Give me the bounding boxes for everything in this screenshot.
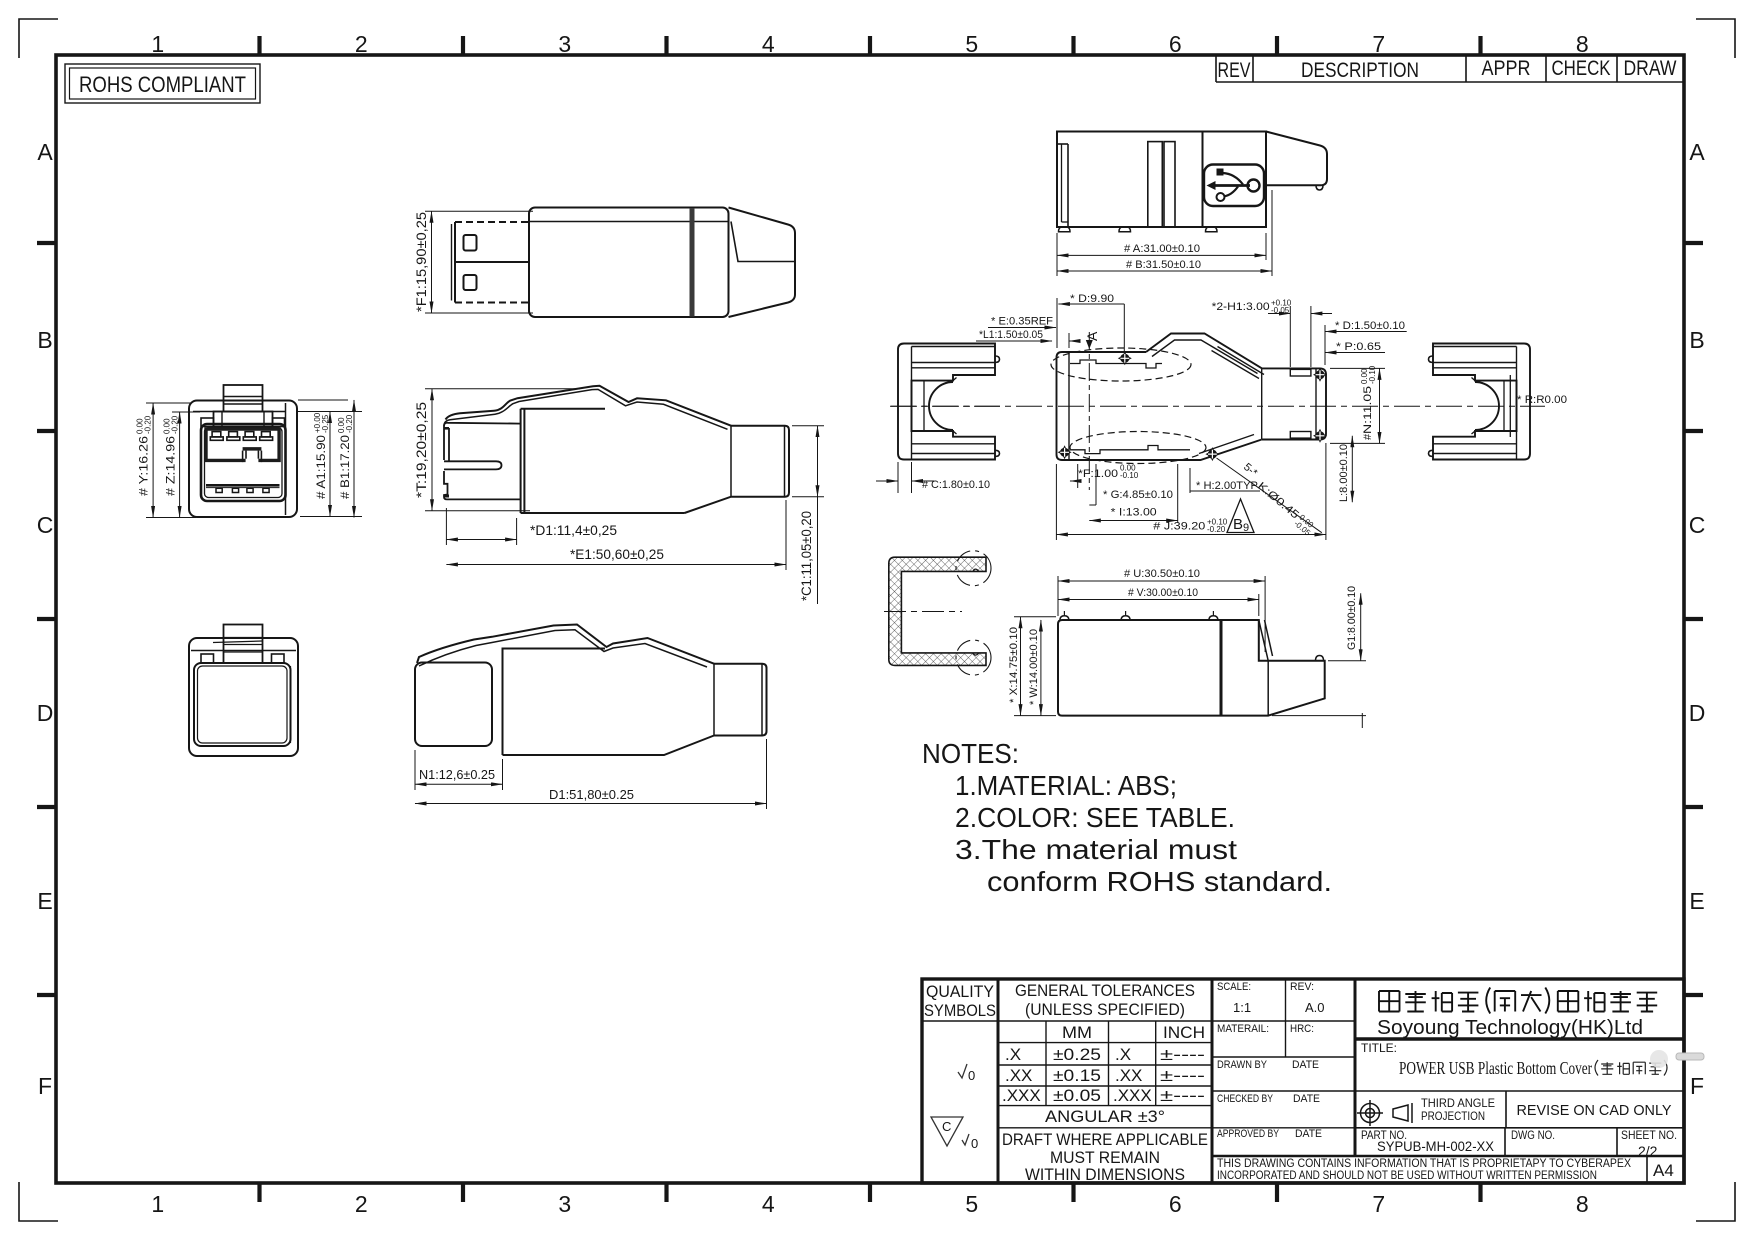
svg-text:POWER USB Plastic Bottom Cover: POWER USB Plastic Bottom Cover bbox=[1399, 1058, 1592, 1078]
svg-text:E: E bbox=[1689, 888, 1704, 914]
svg-text:L:8.00±0.10: L:8.00±0.10 bbox=[1338, 444, 1350, 502]
svg-text:Soyoung Technology(HK)Ltd: Soyoung Technology(HK)Ltd bbox=[1377, 1017, 1643, 1039]
svg-text:.XXX: .XXX bbox=[1002, 1086, 1041, 1105]
svg-text:# B:31.50±0.10: # B:31.50±0.10 bbox=[1126, 259, 1201, 271]
svg-text:0: 0 bbox=[968, 1068, 975, 1083]
svg-text:-0.20: -0.20 bbox=[345, 414, 354, 433]
svg-text:6: 6 bbox=[1169, 1191, 1182, 1217]
svg-text:9: 9 bbox=[1243, 522, 1249, 534]
svg-text:THIRD ANGLE: THIRD ANGLE bbox=[1421, 1096, 1495, 1110]
svg-text:* D:1.50±0.10: * D:1.50±0.10 bbox=[1335, 320, 1405, 332]
svg-text:-0.20: -0.20 bbox=[171, 415, 180, 434]
svg-text:* X:14.75±0.10: * X:14.75±0.10 bbox=[1008, 627, 1020, 703]
svg-text:1: 1 bbox=[151, 31, 164, 57]
svg-text:DATE: DATE bbox=[1295, 1128, 1322, 1140]
svg-text:QUALITY: QUALITY bbox=[926, 982, 994, 1001]
svg-text:.XX: .XX bbox=[1005, 1066, 1032, 1085]
svg-text:8: 8 bbox=[1576, 1191, 1589, 1217]
svg-text:G1:8.00±0.10: G1:8.00±0.10 bbox=[1346, 586, 1358, 650]
svg-text:2: 2 bbox=[355, 1191, 368, 1217]
svg-text:D: D bbox=[1689, 700, 1706, 726]
svg-text:DRAW: DRAW bbox=[1624, 57, 1677, 80]
svg-text:-0.20: -0.20 bbox=[144, 415, 153, 434]
svg-text:7: 7 bbox=[1372, 31, 1385, 57]
svg-text:GENERAL TOLERANCES: GENERAL TOLERANCES bbox=[1015, 981, 1195, 1000]
svg-text:* E:0.35REF: * E:0.35REF bbox=[991, 316, 1053, 328]
svg-text:D1:51,80±0.25: D1:51,80±0.25 bbox=[549, 787, 634, 802]
svg-text:1:1: 1:1 bbox=[1233, 1000, 1251, 1015]
svg-text:INCORPORATED AND SHOULD NOT BE: INCORPORATED AND SHOULD NOT BE USED WITH… bbox=[1217, 1170, 1597, 1182]
svg-text:-0.20: -0.20 bbox=[1207, 525, 1226, 534]
svg-text:# V:30.00±0.10: # V:30.00±0.10 bbox=[1128, 587, 1198, 599]
svg-text:INCH: INCH bbox=[1163, 1023, 1205, 1042]
svg-text:2/2: 2/2 bbox=[1638, 1143, 1658, 1159]
svg-text:A.0: A.0 bbox=[1305, 1000, 1325, 1015]
svg-text:±----: ±---- bbox=[1160, 1045, 1205, 1064]
svg-text:DRAFT WHERE APPLICABLE: DRAFT WHERE APPLICABLE bbox=[1002, 1130, 1208, 1149]
svg-text:# B1:17.20: # B1:17.20 bbox=[338, 435, 352, 499]
svg-text:SHEET NO.: SHEET NO. bbox=[1621, 1128, 1677, 1142]
svg-text:7: 7 bbox=[1372, 1191, 1385, 1217]
svg-text:APPROVED BY: APPROVED BY bbox=[1217, 1128, 1280, 1140]
svg-text:SCALE:: SCALE: bbox=[1217, 981, 1251, 993]
svg-text:4: 4 bbox=[762, 1191, 775, 1217]
svg-text:3: 3 bbox=[558, 1191, 571, 1217]
svg-text:# C:1.80±0.10: # C:1.80±0.10 bbox=[922, 479, 990, 491]
svg-text:# U:30.50±0.10: # U:30.50±0.10 bbox=[1124, 568, 1200, 580]
svg-text:* P:0.65: * P:0.65 bbox=[1336, 341, 1381, 353]
svg-text:B: B bbox=[37, 327, 52, 353]
svg-text:PROJECTION: PROJECTION bbox=[1421, 1109, 1485, 1123]
svg-text:.XXX: .XXX bbox=[1113, 1086, 1152, 1105]
svg-text:.XX: .XX bbox=[1115, 1066, 1142, 1085]
svg-text:±----: ±---- bbox=[1160, 1066, 1205, 1085]
svg-text:-0.10: -0.10 bbox=[1368, 365, 1377, 384]
svg-text:* D:9.90: * D:9.90 bbox=[1070, 293, 1114, 305]
svg-text:*L1:1.50±0.05: *L1:1.50±0.05 bbox=[979, 329, 1043, 341]
svg-text:*F1:15,90±0,25: *F1:15,90±0,25 bbox=[413, 212, 429, 312]
svg-text:A4: A4 bbox=[1653, 1161, 1674, 1180]
svg-text:N1:12,6±0.25: N1:12,6±0.25 bbox=[419, 767, 495, 782]
svg-text:* G:4.85±0.10: * G:4.85±0.10 bbox=[1103, 489, 1173, 501]
svg-text:5: 5 bbox=[965, 1191, 978, 1217]
svg-text:# Z:14.96: # Z:14.96 bbox=[164, 436, 178, 496]
svg-text:# A1:15.90: # A1:15.90 bbox=[314, 435, 328, 499]
svg-text:-0.25: -0.25 bbox=[321, 414, 330, 433]
svg-text:(UNLESS SPECIFIED): (UNLESS SPECIFIED) bbox=[1025, 1000, 1185, 1019]
svg-text:B: B bbox=[1689, 327, 1704, 353]
svg-text:*C1:11,05±0,20: *C1:11,05±0,20 bbox=[798, 511, 814, 601]
svg-text:SYPUB-MH-002-XX: SYPUB-MH-002-XX bbox=[1377, 1138, 1495, 1154]
svg-text:DATE: DATE bbox=[1293, 1093, 1320, 1105]
svg-text:CHECK: CHECK bbox=[1552, 57, 1611, 80]
svg-text:REV: REV bbox=[1218, 59, 1251, 82]
svg-text:-0.05: -0.05 bbox=[1271, 306, 1290, 315]
svg-text:1: 1 bbox=[151, 1191, 164, 1217]
svg-text:REVISE ON CAD ONLY: REVISE ON CAD ONLY bbox=[1517, 1102, 1672, 1119]
svg-text:D: D bbox=[37, 700, 54, 726]
svg-text:MM: MM bbox=[1062, 1023, 1092, 1042]
svg-text:F: F bbox=[1690, 1073, 1704, 1099]
svg-text:*F:1.00: *F:1.00 bbox=[1078, 468, 1118, 480]
svg-text:DWG NO.: DWG NO. bbox=[1511, 1128, 1555, 1142]
svg-text:# Y:16.26: # Y:16.26 bbox=[137, 436, 151, 496]
svg-text:# A:31.00±0.10: # A:31.00±0.10 bbox=[1124, 243, 1200, 255]
svg-text:F: F bbox=[38, 1073, 52, 1099]
svg-text:DATE: DATE bbox=[1292, 1059, 1319, 1071]
svg-text:*2-H1:3.00: *2-H1:3.00 bbox=[1212, 301, 1270, 313]
svg-text:# J:39.20: # J:39.20 bbox=[1153, 521, 1205, 533]
svg-text:-0.10: -0.10 bbox=[1120, 471, 1139, 480]
svg-text:±0.25: ±0.25 bbox=[1053, 1045, 1101, 1064]
svg-text:N:11.05: N:11.05 bbox=[1362, 386, 1374, 434]
svg-text:TITLE:: TITLE: bbox=[1361, 1041, 1397, 1055]
svg-text:E: E bbox=[37, 888, 52, 914]
svg-text:3: 3 bbox=[558, 31, 571, 57]
svg-text:* W:14.00±0.10: * W:14.00±0.10 bbox=[1028, 629, 1040, 705]
svg-text:WITHIN DIMENSIONS: WITHIN DIMENSIONS bbox=[1025, 1165, 1185, 1184]
svg-text:A: A bbox=[1689, 139, 1705, 165]
svg-text:B: B bbox=[1233, 516, 1243, 533]
svg-text:.X: .X bbox=[1005, 1045, 1021, 1064]
svg-text:*T:19,20±0,25: *T:19,20±0,25 bbox=[413, 402, 429, 498]
svg-text:conform ROHS standard.: conform ROHS standard. bbox=[987, 866, 1332, 897]
svg-text:SYMBOLS: SYMBOLS bbox=[924, 1001, 996, 1020]
svg-text:MATERAIL:: MATERAIL: bbox=[1217, 1023, 1269, 1035]
svg-text:REV:: REV: bbox=[1290, 981, 1314, 993]
svg-text:HRC:: HRC: bbox=[1290, 1023, 1314, 1035]
svg-text:A: A bbox=[37, 139, 53, 165]
svg-text:2: 2 bbox=[355, 31, 368, 57]
svg-text:*E1:50,60±0,25: *E1:50,60±0,25 bbox=[570, 546, 664, 562]
svg-text:C: C bbox=[942, 1119, 951, 1134]
svg-text:DESCRIPTION: DESCRIPTION bbox=[1301, 59, 1419, 82]
svg-text:APPR: APPR bbox=[1482, 57, 1531, 80]
svg-text:±0.15: ±0.15 bbox=[1053, 1066, 1101, 1085]
svg-text:.X: .X bbox=[1115, 1045, 1131, 1064]
svg-text:ROHS COMPLIANT: ROHS COMPLIANT bbox=[79, 72, 246, 97]
svg-text:0: 0 bbox=[971, 1136, 978, 1151]
svg-text:±0.05: ±0.05 bbox=[1053, 1086, 1101, 1105]
svg-text:8: 8 bbox=[1576, 31, 1589, 57]
svg-text:NOTES:: NOTES: bbox=[922, 738, 1019, 769]
svg-text:* R:R0.00: * R:R0.00 bbox=[1517, 394, 1567, 406]
svg-text:CHECKED BY: CHECKED BY bbox=[1217, 1093, 1274, 1105]
svg-text:* H:2.00TYP: * H:2.00TYP bbox=[1196, 480, 1258, 492]
svg-text:#: # bbox=[1362, 433, 1374, 440]
svg-text:* I:13.00: * I:13.00 bbox=[1111, 507, 1157, 519]
svg-text:DRAWN BY: DRAWN BY bbox=[1217, 1059, 1268, 1071]
svg-text:3.The material must: 3.The material must bbox=[955, 834, 1237, 865]
svg-text:C: C bbox=[1689, 512, 1706, 538]
svg-text:±----: ±---- bbox=[1160, 1086, 1205, 1105]
svg-text:6: 6 bbox=[1169, 31, 1182, 57]
svg-text:2.COLOR: SEE TABLE.: 2.COLOR: SEE TABLE. bbox=[955, 802, 1235, 833]
svg-text:1.MATERIAL: ABS;: 1.MATERIAL: ABS; bbox=[955, 770, 1177, 801]
svg-text:THIS DRAWING CONTAINS INFORMAT: THIS DRAWING CONTAINS INFORMATION THAT I… bbox=[1217, 1158, 1631, 1170]
svg-text:*D1:11,4±0,25: *D1:11,4±0,25 bbox=[530, 522, 617, 538]
svg-text:C: C bbox=[37, 512, 54, 538]
svg-text:ANGULAR ±3°: ANGULAR ±3° bbox=[1045, 1107, 1165, 1126]
svg-text:4: 4 bbox=[762, 31, 775, 57]
svg-text:A: A bbox=[1084, 331, 1100, 341]
svg-text:5: 5 bbox=[965, 31, 978, 57]
